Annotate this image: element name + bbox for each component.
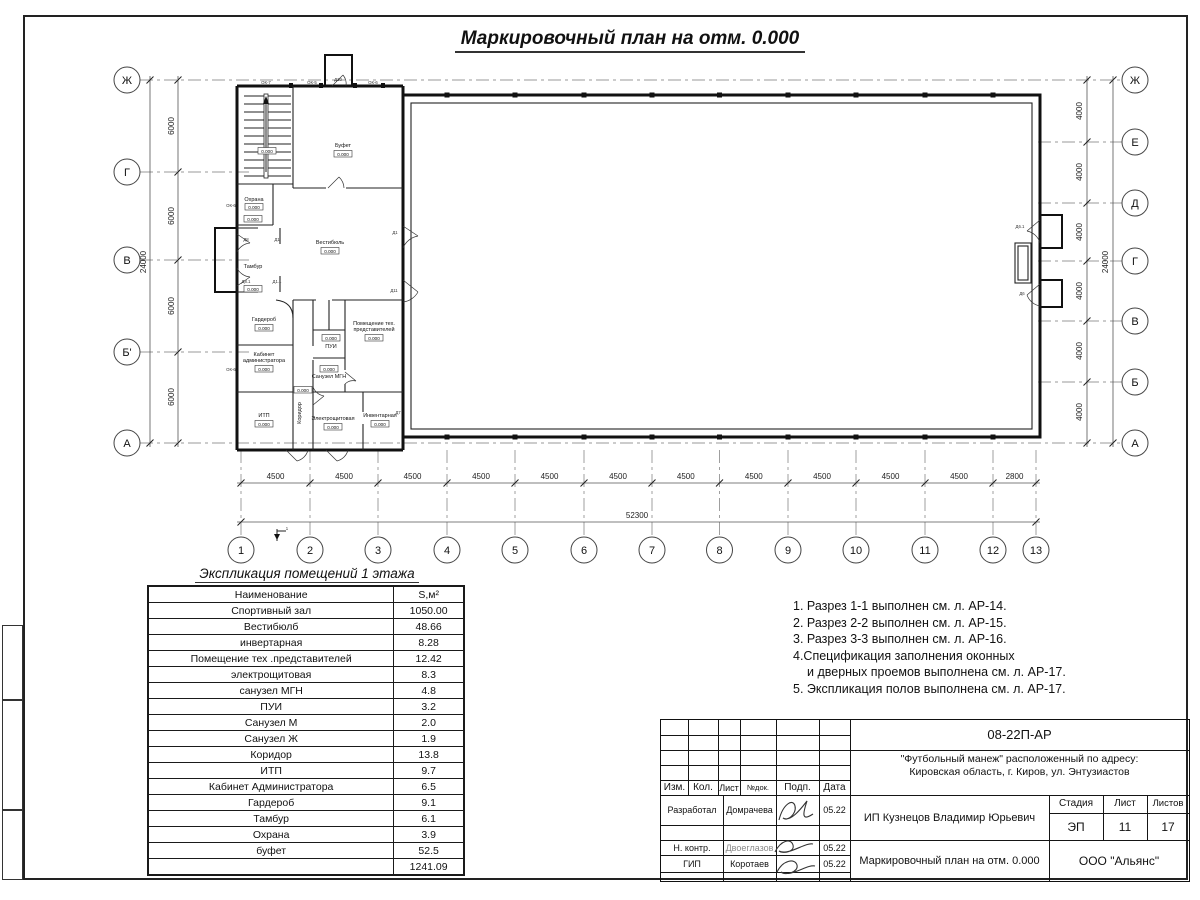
note-line: 5. Экспликация полов выполнена см. л. АР… (793, 681, 1153, 698)
frame-edge-box (2, 625, 23, 700)
elevation-mark: 0.000 (323, 367, 335, 372)
room-area: 3.9 (394, 827, 464, 843)
column-label: 4 (444, 545, 450, 557)
dim-label: 6000 (167, 207, 176, 225)
tb-role-date: 05.22 (819, 855, 850, 872)
tb-role: ГИП (661, 855, 723, 872)
dim-label: 4500 (404, 472, 422, 481)
schedule-row: санузел МГН4.8 (148, 683, 464, 699)
axis-grid-lines (140, 80, 1122, 537)
dim-label: 4500 (267, 472, 285, 481)
tb-role-date: 05.22 (819, 840, 850, 855)
door-label: Д8.1 (242, 279, 251, 284)
room-labels: Буфет Вестибюль Охрана Тамбур Гардероб К… (243, 143, 397, 424)
elevation-mark: 0.000 (324, 249, 336, 254)
room-label: ИТП (258, 413, 269, 419)
door-label: Д6 (1019, 291, 1025, 296)
column-label: 12 (987, 545, 999, 557)
room-name: электрощитовая (148, 667, 394, 683)
room-area: 48.66 (394, 619, 464, 635)
dim-label: 4000 (1075, 282, 1084, 300)
schedule-row: Санузел Ж1.9 (148, 731, 464, 747)
tb-header-list: Лист (718, 780, 740, 795)
room-name: Охрана (148, 827, 394, 843)
tb-header-podp: Подп. (776, 780, 819, 795)
column-markers (289, 83, 996, 440)
room-name: Вестибюлб (148, 619, 394, 635)
column-label: 2 (307, 545, 313, 557)
room-label: Электрощитовая (311, 416, 354, 422)
schedule-title: Экспликация помещений 1 этажа (147, 566, 467, 581)
room-label: Коридор (297, 402, 303, 424)
schedule-row: ПУИ3.2 (148, 699, 464, 715)
door-label: Д1.1 (273, 279, 282, 284)
elevation-mark: 0.000 (247, 287, 259, 292)
column-label: 8 (716, 545, 722, 557)
room-name: Спортивный зал (148, 603, 394, 619)
elevation-mark: 0.000 (325, 336, 337, 341)
schedule-row: Вестибюлб48.66 (148, 619, 464, 635)
room-area: 9.1 (394, 795, 464, 811)
dim-total-label: 52300 (626, 511, 649, 520)
schedule-row: Санузел М2.0 (148, 715, 464, 731)
staircase (244, 94, 291, 178)
dim-label: 4000 (1075, 102, 1084, 120)
pylon (1015, 243, 1031, 283)
column-label: 10 (850, 545, 862, 557)
note-line: 4.Спецификация заполнения оконных (793, 648, 1153, 665)
dim-label: 4500 (813, 472, 831, 481)
note-line: 3. Разрез 3-3 выполнен см. л. АР-16. (793, 631, 1153, 648)
window-label: ОК-6 (226, 203, 236, 208)
dim-label: 4500 (677, 472, 695, 481)
room-name: ИТП (148, 763, 394, 779)
door-label: Д11 (390, 288, 398, 293)
opening-labels: ОК-7 ОК-5 Д10 ОК-6 ОК-6 ОК-6 Д1 Д11 Д8 Д… (226, 77, 1025, 415)
axis-label: В (1131, 316, 1138, 328)
room-label: представителей (353, 326, 394, 333)
section-mark-label: 1 (286, 526, 289, 531)
tb-header-kol: Кол. (688, 780, 718, 795)
tb-role-name: Коротаев (723, 855, 776, 872)
dim-label: 4500 (882, 472, 900, 481)
axis-label: Ж (122, 75, 132, 87)
tb-sheet-value: 11 (1103, 813, 1147, 840)
door-label: Д10 (334, 77, 342, 82)
tb-address-line2: Кировская область, г. Киров, ул. Энтузиа… (850, 766, 1189, 779)
room-label: Охрана (244, 197, 264, 203)
schedule-table: НаименованиеS,м² Спортивный зал1050.00 В… (147, 585, 465, 876)
room-label: Буфет (335, 143, 352, 149)
axis-label: Б' (122, 347, 131, 359)
dim-label: 4000 (1075, 342, 1084, 360)
axis-bubbles: Ж Г В Б' А Ж Е Д Г В Б А 1 2 3 4 5 6 7 8… (114, 67, 1148, 563)
axis-label: Г (1132, 256, 1138, 268)
tb-address-line1: "Футбольный манеж" расположенный по адре… (850, 753, 1189, 766)
dim-label: 4500 (745, 472, 763, 481)
dim-label: 4500 (472, 472, 490, 481)
note-line: 2. Разрез 2-2 выполнен см. л. АР-15. (793, 615, 1153, 632)
room-label: Вестибюль (316, 240, 344, 246)
room-area: 6.1 (394, 811, 464, 827)
frame-edge-box (2, 810, 23, 880)
elevation-mark: 0.000 (337, 152, 349, 157)
elevation-mark: 0.000 (248, 205, 260, 210)
axis-label: Е (1131, 137, 1138, 149)
column-label: 9 (785, 545, 791, 557)
total-area: 1241.09 (394, 859, 464, 876)
elevation-mark: 0.000 (368, 336, 380, 341)
schedule-total-row: 1241.09 (148, 859, 464, 876)
room-name: Гардероб (148, 795, 394, 811)
room-name: санузел МГН (148, 683, 394, 699)
elevation-mark: 0.000 (327, 425, 339, 430)
tb-drawing-title: Маркировочный план на отм. 0.000 (850, 840, 1049, 882)
tb-project-address: "Футбольный манеж" расположенный по адре… (850, 753, 1189, 779)
dim-total-label: 24000 (1101, 250, 1110, 273)
page-title: Маркировочный план на отм. 0.000 (380, 28, 880, 50)
dim-label: 6000 (167, 388, 176, 406)
room-area: 8.28 (394, 635, 464, 651)
room-name: Коридор (148, 747, 394, 763)
room-area: 3.2 (394, 699, 464, 715)
room-name: Кабинет Администратора (148, 779, 394, 795)
schedule-row: ИТП9.7 (148, 763, 464, 779)
door-swings (237, 75, 1040, 461)
tb-header-izm: Изм. (661, 780, 688, 795)
axis-label: В (123, 255, 130, 267)
room-label: Инвентарная (363, 413, 397, 419)
column-label: 6 (581, 545, 587, 557)
note-line: 1. Разрез 1-1 выполнен см. л. АР-14. (793, 598, 1153, 615)
room-name: ПУИ (148, 699, 394, 715)
elevation-mark: 0.000 (258, 326, 270, 331)
room-area: 13.8 (394, 747, 464, 763)
window-label: ОК-7 (261, 80, 271, 85)
dim-label: 4000 (1075, 163, 1084, 181)
floor-plan: 4500 4500 4500 4500 4500 4500 4500 4500 … (85, 48, 1175, 578)
room-label: Санузел МГН (312, 374, 347, 380)
room-name: Помещение тех .представителей (148, 651, 394, 667)
tb-header-data: Дата (819, 780, 850, 795)
room-area: 1050.00 (394, 603, 464, 619)
schedule-row: Кабинет Администратора6.5 (148, 779, 464, 795)
room-name: Санузел Ж (148, 731, 394, 747)
tb-doc-number: 08-22П-АР (850, 720, 1189, 750)
axis-label: А (123, 438, 131, 450)
elevation-mark: 0.000 (297, 388, 309, 393)
room-schedule: Экспликация помещений 1 этажа Наименован… (147, 566, 467, 876)
room-area: 9.7 (394, 763, 464, 779)
schedule-col-header: Наименование (148, 586, 394, 603)
elevation-marks: 0.000 0.000 0.000 0.000 0.000 0.000 0.00… (244, 148, 389, 431)
tb-role-name: Домрачева (723, 795, 776, 825)
signature (774, 796, 819, 826)
room-name: инвертарная (148, 635, 394, 651)
schedule-header-row: НаименованиеS,м² (148, 586, 464, 603)
schedule-row: Спортивный зал1050.00 (148, 603, 464, 619)
tb-role: Н. контр. (661, 840, 723, 855)
notes-list: 1. Разрез 1-1 выполнен см. л. АР-14. 2. … (793, 598, 1153, 697)
room-name: Тамбур (148, 811, 394, 827)
dim-label: 2800 (1006, 472, 1024, 481)
dim-label: 6000 (167, 297, 176, 315)
elevation-mark: 0.000 (261, 149, 273, 154)
door-label: Д7 (395, 410, 401, 415)
room-label: Тамбур (244, 264, 263, 270)
elevation-mark: 0.000 (258, 367, 270, 372)
axis-label: А (1131, 438, 1139, 450)
column-label: 11 (919, 545, 930, 557)
schedule-row: электрощитовая8.3 (148, 667, 464, 683)
room-area: 1.9 (394, 731, 464, 747)
note-line: и дверных проемов выполнена см. л. АР-17… (793, 664, 1153, 681)
exit-vestibule-right-1 (1040, 215, 1062, 248)
dim-label: 4500 (541, 472, 559, 481)
room-area: 6.5 (394, 779, 464, 795)
column-label: 1 (238, 545, 244, 557)
door-label: Д6.1 (1016, 224, 1025, 229)
room-area: 2.0 (394, 715, 464, 731)
tb-stage-label: Стадия (1049, 795, 1103, 813)
room-name: буфет (148, 843, 394, 859)
building-outline (215, 55, 1062, 450)
tb-stage-value: ЭП (1049, 813, 1103, 840)
total-spacer (148, 859, 394, 876)
schedule-row: буфет52.5 (148, 843, 464, 859)
dim-label: 6000 (167, 117, 176, 135)
pylon-inner (1018, 246, 1028, 280)
schedule-row: Помещение тех .представителей12.42 (148, 651, 464, 667)
tb-sheet-label: Лист (1103, 795, 1147, 813)
elevation-mark: 0.000 (258, 422, 270, 427)
room-label: ПУИ (325, 344, 336, 350)
tb-header-ndok: №док. (740, 780, 776, 795)
tb-company: ООО "Альянс" (1049, 840, 1189, 882)
window-label: ОК-6 (226, 367, 236, 372)
schedule-row: инвертарная8.28 (148, 635, 464, 651)
room-name: Санузел М (148, 715, 394, 731)
title-block: Изм. Кол. Лист №док. Подп. Дата Разработ… (660, 719, 1190, 882)
dim-label: 4500 (335, 472, 353, 481)
dim-label: 4000 (1075, 403, 1084, 421)
door-label: Д1 (392, 230, 398, 235)
column-label: 5 (512, 545, 518, 557)
schedule-row: Коридор13.8 (148, 747, 464, 763)
axis-label: Ж (1130, 75, 1140, 87)
room-area: 4.8 (394, 683, 464, 699)
schedule-row: Охрана3.9 (148, 827, 464, 843)
schedule-col-header: S,м² (394, 586, 464, 603)
column-label: 13 (1030, 545, 1042, 557)
room-label: Гардероб (252, 317, 276, 323)
window-label: ОК-5 (307, 80, 317, 85)
elevation-mark: 0.000 (374, 422, 386, 427)
schedule-row: Гардероб9.1 (148, 795, 464, 811)
door-label: Д1 (274, 237, 280, 242)
drawing-sheet: Маркировочный план на отм. 0.000 4500 45… (0, 0, 1200, 900)
axis-label: Б (1131, 377, 1138, 389)
dim-label: 4500 (950, 472, 968, 481)
schedule-row: Тамбур6.1 (148, 811, 464, 827)
room-area: 52.5 (394, 843, 464, 859)
tb-role: Разработал (661, 795, 723, 825)
signature (771, 836, 819, 880)
room-area: 12.42 (394, 651, 464, 667)
dimension-lines: 4500 4500 4500 4500 4500 4500 4500 4500 … (139, 76, 1117, 526)
elevation-mark: 0.000 (247, 217, 259, 222)
axis-label: Г (124, 167, 130, 179)
door-label: Д8 (243, 237, 249, 242)
room-area: 8.3 (394, 667, 464, 683)
tb-sheets-value: 17 (1147, 813, 1189, 840)
tb-role-date: 05.22 (819, 795, 850, 825)
dim-label: 4500 (609, 472, 627, 481)
exit-vestibule-right-2 (1040, 280, 1062, 307)
column-label: 7 (649, 545, 655, 557)
section-mark: 1 (274, 526, 289, 541)
tb-role-name: Двоеглазов (723, 840, 776, 855)
frame-edge-box (2, 700, 23, 810)
axis-label: Д (1131, 198, 1139, 210)
dim-label: 4000 (1075, 223, 1084, 241)
tb-customer: ИП Кузнецов Владимир Юрьевич (850, 795, 1049, 840)
window-label: ОК-6 (368, 80, 378, 85)
room-label: администратора (243, 358, 286, 364)
tb-sheets-label: Листов (1147, 795, 1189, 813)
column-label: 3 (375, 545, 381, 557)
